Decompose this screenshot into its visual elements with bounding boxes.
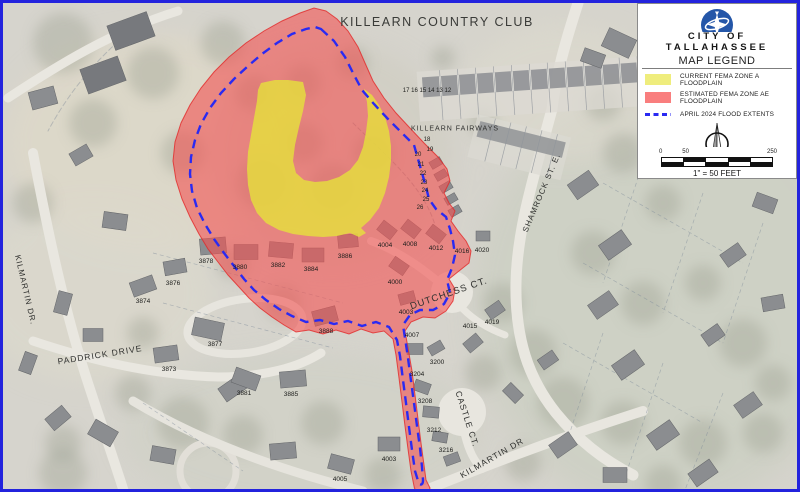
org-name-line1: CITY OF — [688, 32, 746, 43]
legend-item-label: ESTIMATED FEMA ZONE AE FLOODPLAIN — [680, 91, 792, 105]
scale-bar-blocks — [661, 157, 773, 167]
map-legend-panel: CITY OF TALLAHASSEE MAP LEGEND CURRENT F… — [637, 3, 797, 179]
scale-tick: 50 — [682, 149, 689, 155]
flood-map-frame: KILLEARN COUNTRY CLUBKILLEARN FAIRWAYSSH… — [0, 0, 800, 492]
legend-item-flood-extents: APRIL 2024 FLOOD EXTENTS — [642, 109, 792, 120]
north-arrow-icon — [700, 121, 734, 147]
scale-caption: 1" = 50 FEET — [661, 169, 773, 178]
city-of-tallahassee-logo — [700, 8, 734, 32]
flood-extents-swatch — [645, 109, 671, 120]
zone-ae-swatch — [645, 92, 671, 103]
scale-tick: 0 — [659, 149, 662, 155]
scale-ticks: 0 50 250 — [661, 149, 773, 157]
legend-item-zone-ae: ESTIMATED FEMA ZONE AE FLOODPLAIN — [642, 91, 792, 105]
legend-divider — [642, 68, 792, 69]
org-name-line2: TALLAHASSEE — [666, 43, 769, 54]
zone-a-swatch — [645, 74, 671, 85]
legend-item-label: CURRENT FEMA ZONE A FLOODPLAIN — [680, 73, 792, 87]
scale-bar: 0 50 250 1" = 50 FEET — [661, 149, 773, 178]
legend-title: MAP LEGEND — [679, 55, 756, 67]
legend-item-zone-a: CURRENT FEMA ZONE A FLOODPLAIN — [642, 73, 792, 87]
legend-item-label: APRIL 2024 FLOOD EXTENTS — [680, 111, 774, 118]
scale-tick: 250 — [767, 149, 777, 155]
